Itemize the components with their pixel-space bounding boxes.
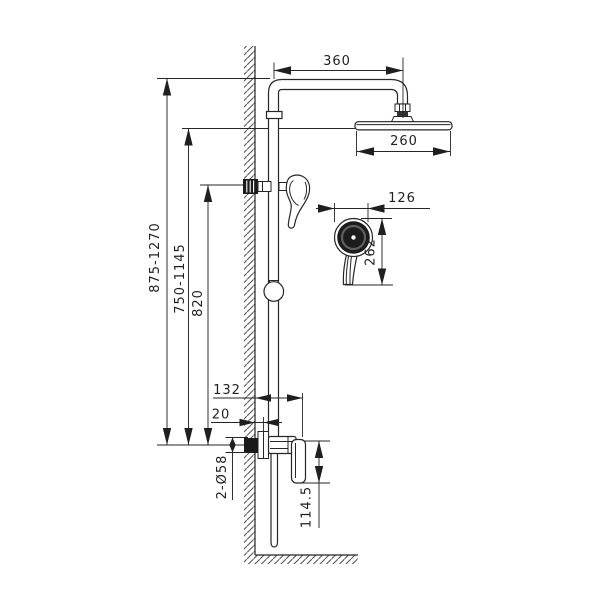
hand-shower-body xyxy=(286,175,309,228)
arrow-left-icon xyxy=(274,66,291,74)
wall-supply-block xyxy=(244,438,258,453)
pipe-collar xyxy=(267,112,283,119)
slide-ball xyxy=(264,281,284,302)
dim-handset-width: 126 xyxy=(316,191,430,213)
arrow-left-icon xyxy=(357,147,374,155)
arrow-right-icon xyxy=(318,204,335,212)
shower-system-dimension-drawing: 360 260 875-1270 750-1145 xyxy=(0,0,600,600)
dim-head-width: 260 xyxy=(357,131,451,156)
floor-hatch xyxy=(244,555,358,564)
dim-valve-body-height-label: 114.5 xyxy=(300,486,315,528)
dim-handset-width-label: 126 xyxy=(388,191,416,206)
dim-arm-span-label: 360 xyxy=(323,54,351,69)
dim-total-height: 875-1270 xyxy=(148,79,171,446)
dim-head-height: 750-1145 xyxy=(173,129,193,446)
head-connector xyxy=(392,104,414,122)
dim-total-height-label: 875-1270 xyxy=(148,222,163,293)
dim-escutcheon-label: 2-Ø58 xyxy=(215,455,230,500)
arrow-down-icon xyxy=(204,428,212,445)
overhead-shower-head xyxy=(355,122,452,130)
arrow-up-icon xyxy=(315,441,323,458)
handset-center-dot xyxy=(351,235,355,239)
dim-valve-depth-label: 132 xyxy=(213,383,241,398)
wall-hatch xyxy=(244,46,255,555)
arrow-up-icon xyxy=(378,219,386,236)
dim-holder-height-label: 820 xyxy=(191,289,206,317)
technical-drawing-page: 360 260 875-1270 750-1145 xyxy=(0,0,600,600)
dim-wall-gap-label: 20 xyxy=(212,408,231,423)
arrow-down-icon xyxy=(315,466,323,483)
dim-holder-height: 820 xyxy=(191,185,212,445)
arrow-down-icon xyxy=(184,428,192,445)
arrow-right-icon xyxy=(386,66,403,74)
arrow-right-icon xyxy=(433,147,450,155)
bracket-stem xyxy=(258,182,271,192)
arrow-left-icon xyxy=(368,204,385,212)
arrow-down-icon xyxy=(378,269,386,286)
arrow-left-icon xyxy=(256,394,272,402)
dim-handset-length-label: 262 xyxy=(364,238,379,266)
valve-handle xyxy=(292,440,306,484)
arrow-right-icon xyxy=(287,394,303,402)
arrow-up-icon xyxy=(204,185,212,202)
shower-fixture xyxy=(243,80,452,548)
arrow-up-icon xyxy=(229,438,235,446)
outlet-drop-tube xyxy=(271,454,278,548)
arrow-down-icon xyxy=(163,428,171,445)
riser-pipe-and-arm xyxy=(269,80,408,439)
wall-bracket xyxy=(243,179,271,194)
connector-flange xyxy=(392,117,414,122)
arrow-down-icon xyxy=(229,445,235,453)
dim-head-width-label: 260 xyxy=(390,134,418,149)
dim-head-height-label: 750-1145 xyxy=(173,243,188,314)
arrow-up-icon xyxy=(163,79,171,96)
hand-shower-on-holder xyxy=(279,175,310,228)
arrow-up-icon xyxy=(184,129,192,146)
connector-dark-band xyxy=(397,112,408,117)
